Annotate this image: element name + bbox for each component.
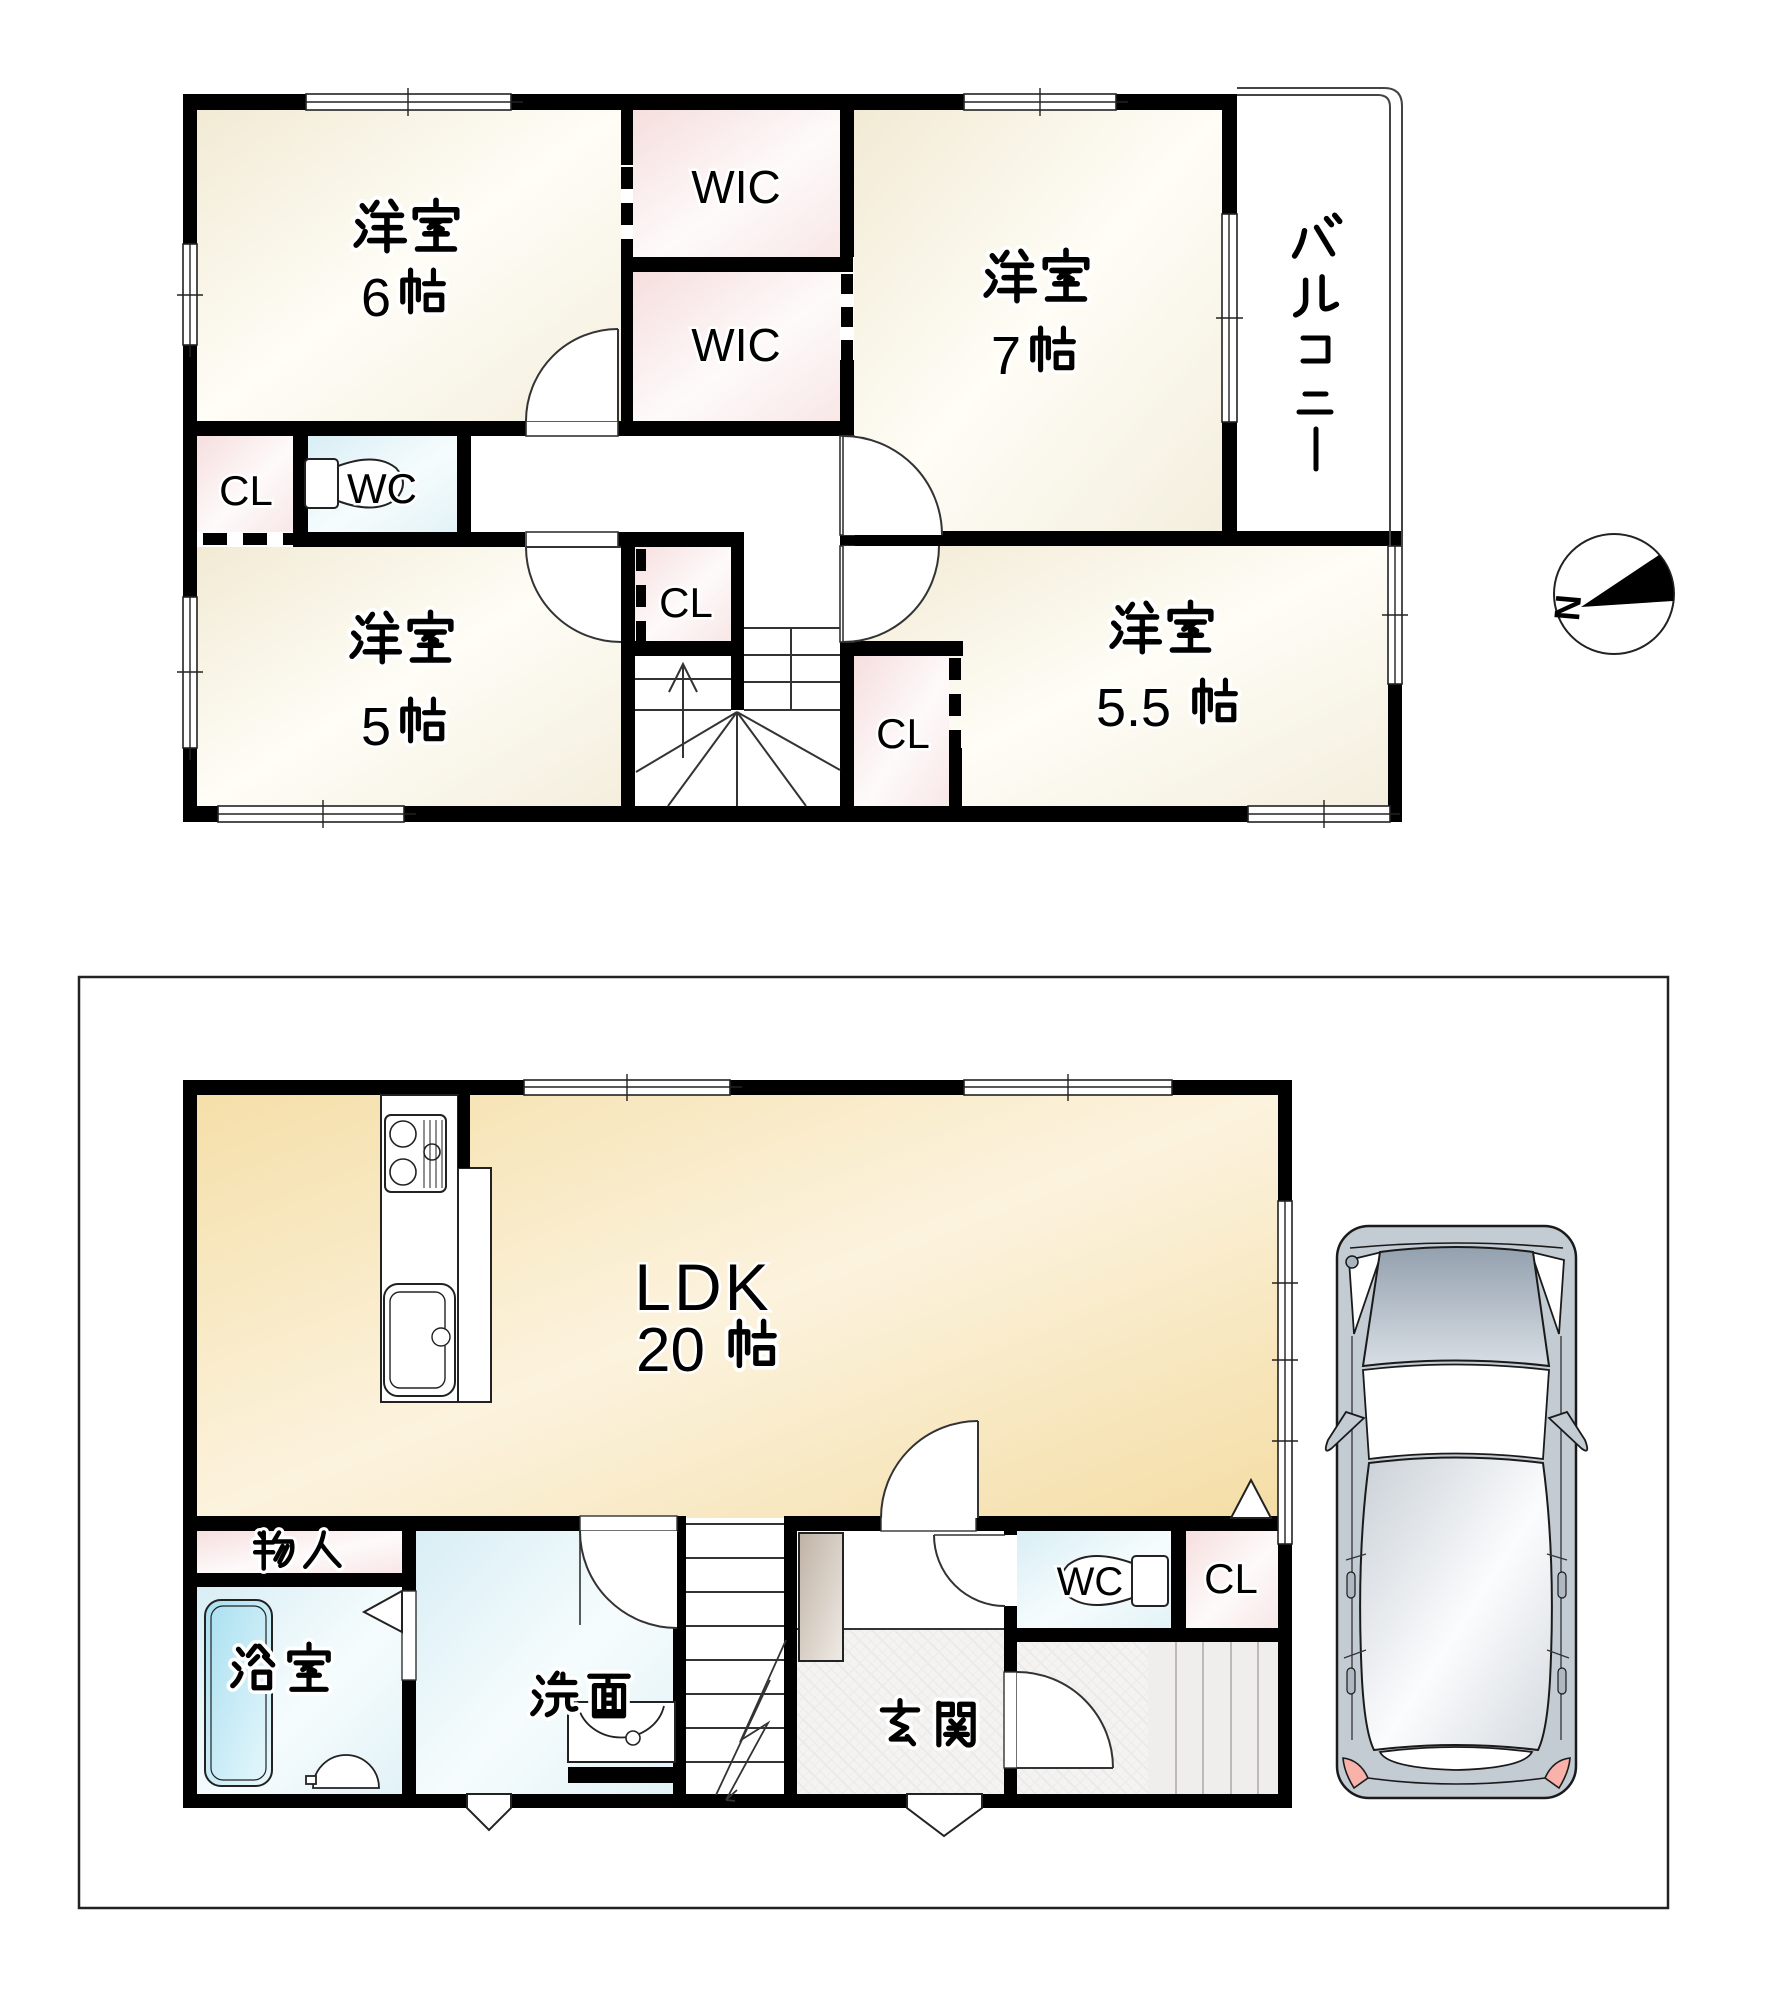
svg-text:5: 5 [361, 697, 391, 757]
svg-text:WC: WC [1057, 1560, 1124, 1604]
svg-text:WC: WC [347, 465, 417, 512]
svg-text:CL: CL [876, 710, 930, 757]
svg-text:WIC: WIC [691, 319, 780, 371]
svg-text:6: 6 [361, 268, 391, 328]
svg-text:LDK: LDK [634, 1250, 771, 1324]
svg-text:7: 7 [991, 326, 1021, 386]
svg-text:CL: CL [219, 467, 273, 514]
svg-text:5.5: 5.5 [1096, 678, 1171, 738]
svg-text:N: N [1546, 593, 1589, 622]
svg-text:CL: CL [1204, 1555, 1258, 1602]
svg-text:CL: CL [659, 579, 713, 626]
svg-text:20: 20 [636, 1316, 705, 1385]
svg-text:WIC: WIC [691, 161, 780, 213]
